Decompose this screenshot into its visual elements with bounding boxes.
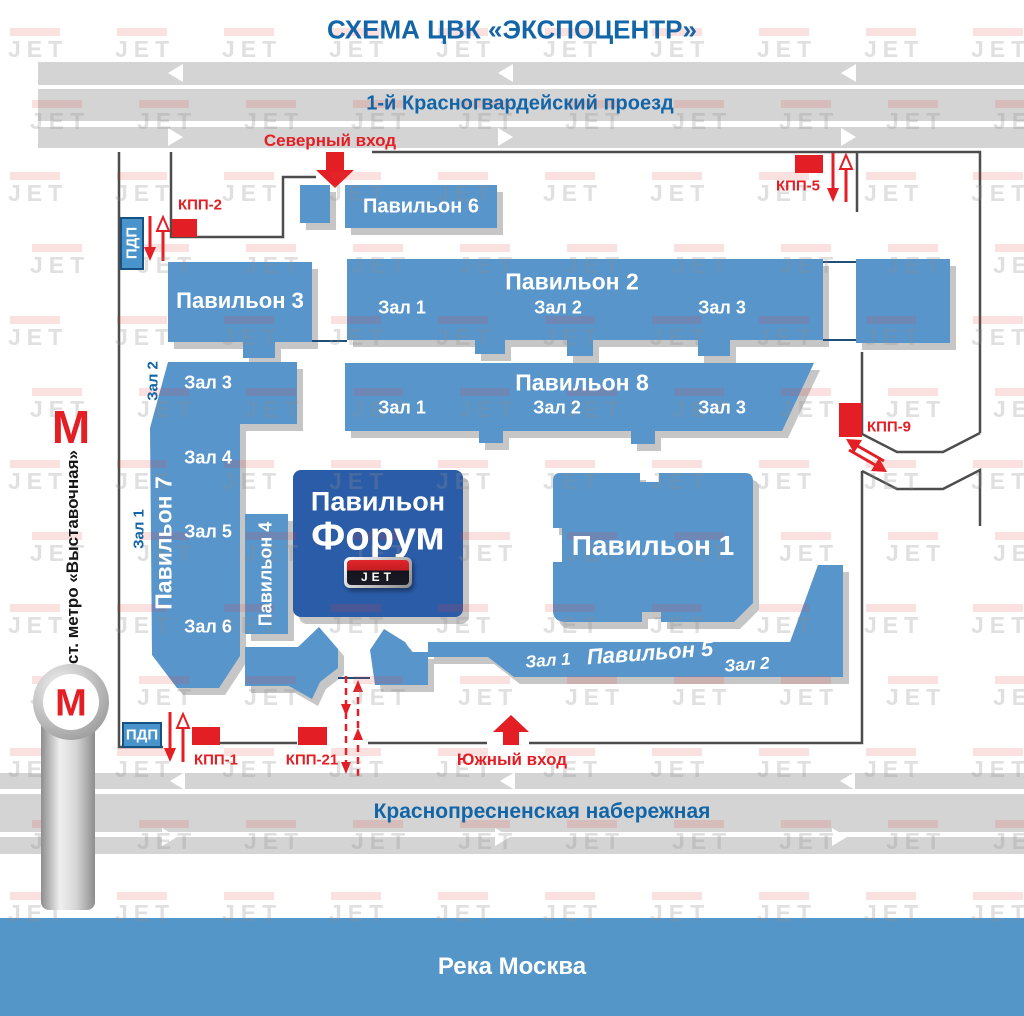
expocentre-scheme: JETJETJETJETJETJETJETJETJETJETJETJETJETJ… [0,0,1024,1016]
pavilion-2-hall-2-label: Зал 2 [534,298,582,319]
jet-logo: JET [344,557,412,588]
kpp-5-label: КПП-5 [776,178,820,195]
kpp-2-label: КПП-2 [178,197,222,214]
metro-station-label: ст. метро «Выставочная» [63,450,83,664]
pdp-bottom-label: ПДП [126,727,158,744]
pavilion-8-hall-1-label: Зал 1 [378,398,426,419]
pavilion-2-label: Павильон 2 [505,269,638,296]
pavilion-1-label: Павильон 1 [572,530,735,562]
jet-logo-panel: JET [347,560,409,585]
pavilion-7-hall-4-label: Зал 4 [184,448,232,469]
kpp-21-label: КПП-21 [286,752,338,769]
kpp-1-label: КПП-1 [194,752,238,769]
pavilion-forum-line1-label: Павильон [311,487,445,518]
jet-logo-text: JET [361,570,395,585]
south-road-label: Краснопресненская набережная [374,800,711,824]
pavilion-4-label: Павильон 4 [256,522,277,626]
pavilion-5-hall-2-label: Зал 2 [724,653,771,676]
pavilion-8-label: Павильон 8 [515,370,648,397]
pavilion-2-hall-3-label: Зал 3 [698,298,746,319]
page-title: СХЕМА ЦВК «ЭКСПОЦЕНТР» [327,15,697,46]
pavilion-6-label: Павильон 6 [363,196,479,219]
metro-circle-icon: М [55,683,87,726]
pavilion-forum-line2-label: Форум [311,515,445,560]
pavilion-7-label: Павильон 7 [151,476,178,609]
pavilion-7-hall-6-label: Зал 6 [184,617,232,638]
pavilion-8-hall-2-label: Зал 2 [533,398,581,419]
pavilion-7-hall-2-side-label: Зал 2 [145,361,162,401]
pavilion-7-hall-3-label: Зал 3 [184,373,232,394]
pavilion-7-hall-1-side-label: Зал 1 [131,509,148,549]
south-entrance-label: Южный вход [457,750,567,770]
pavilion-5-hall-1-label: Зал 1 [525,649,572,672]
pavilion-7-hall-5-label: Зал 5 [184,522,232,543]
river-label: Река Москва [438,953,586,981]
pavilion-8-hall-3-label: Зал 3 [698,398,746,419]
metro-logo-icon: М [52,400,90,454]
pavilion-3-label: Павильон 3 [176,288,304,314]
pdp-top-label: ПДП [124,227,141,259]
pavilion-2-hall-1-label: Зал 1 [378,298,426,319]
north-road-label: 1-й Красногвардейский проезд [366,93,673,116]
north-entrance-label: Северный вход [264,131,396,151]
kpp-9-label: КПП-9 [867,419,911,436]
